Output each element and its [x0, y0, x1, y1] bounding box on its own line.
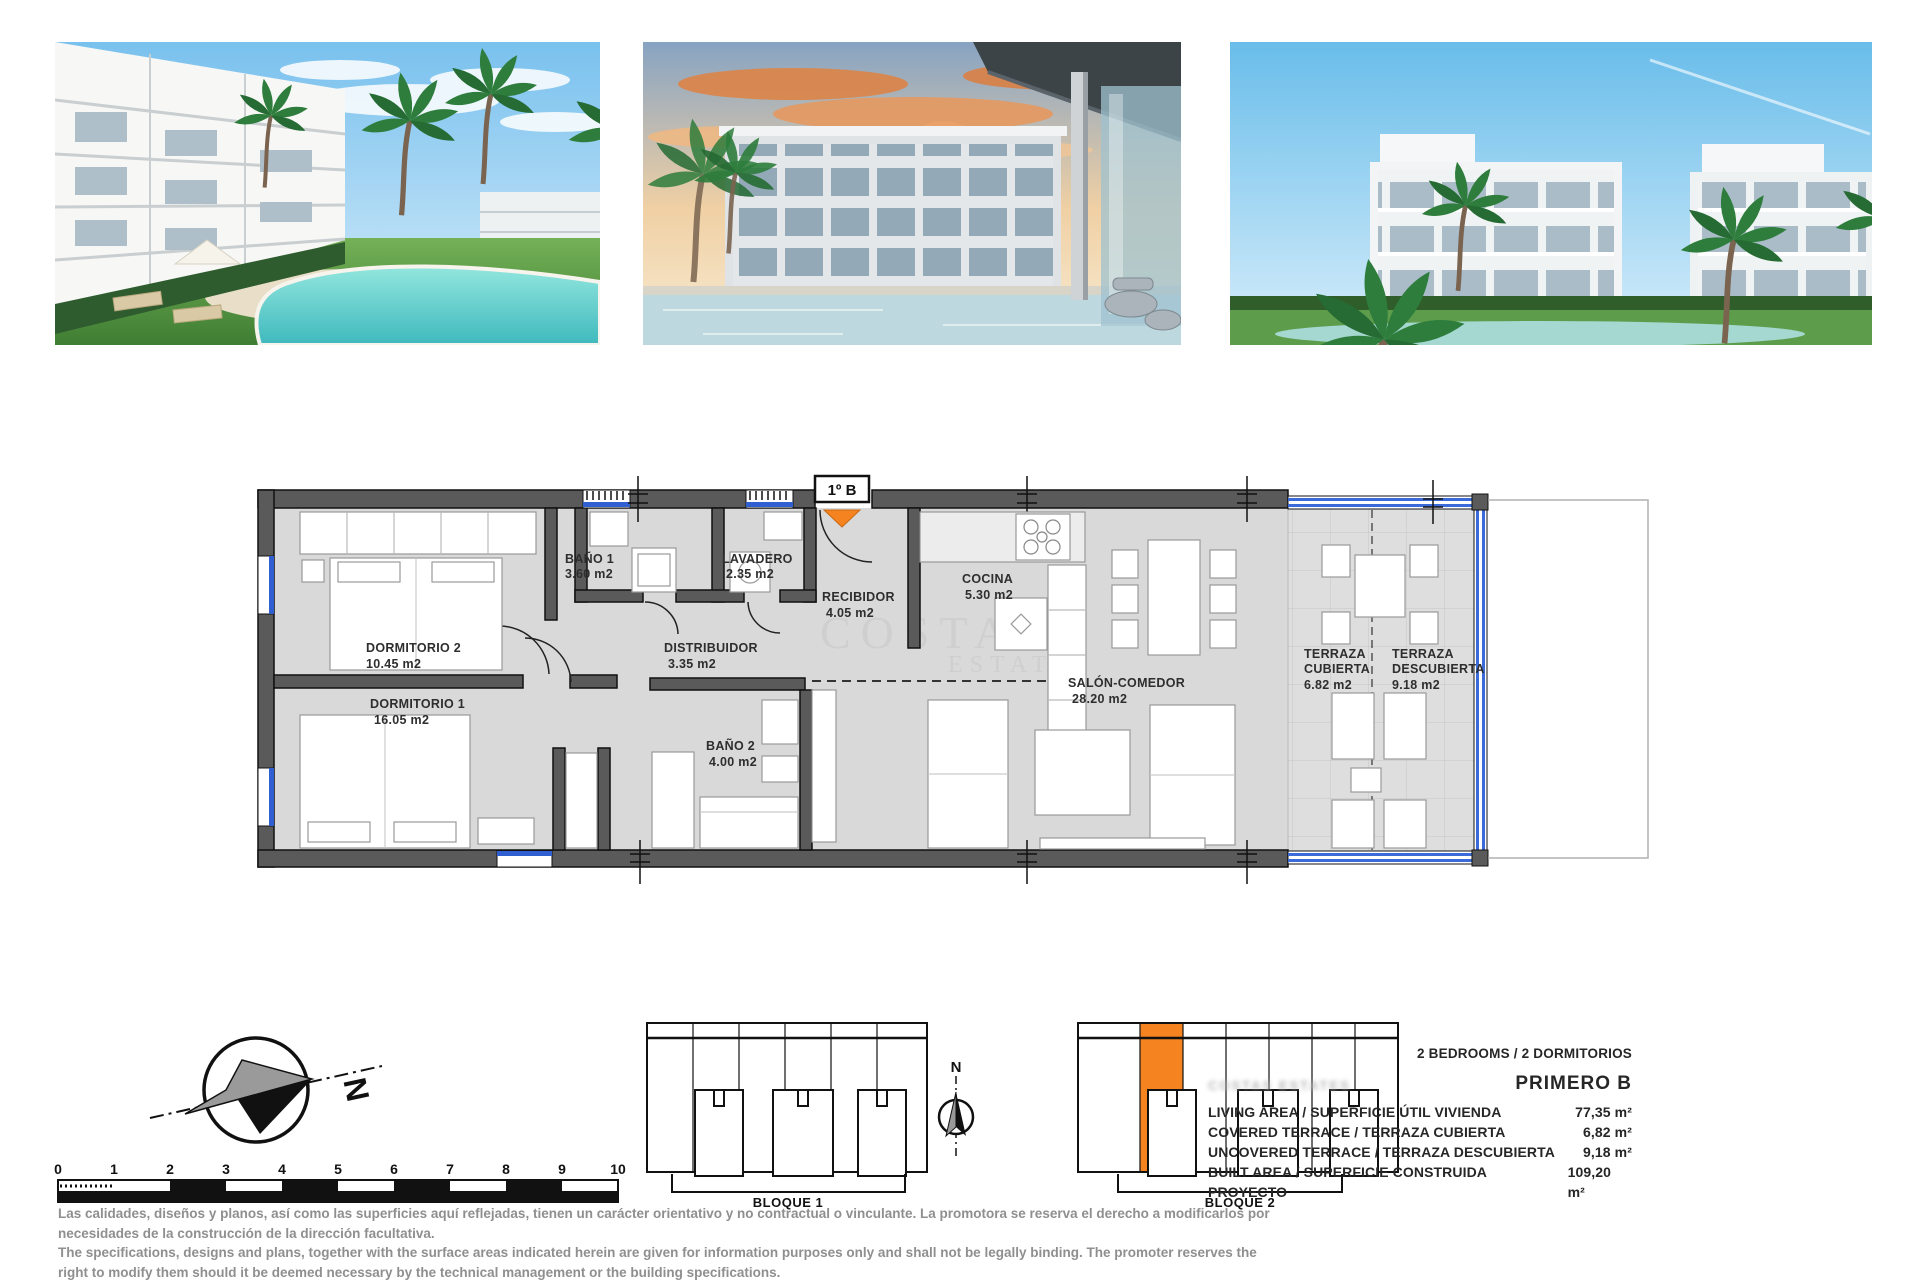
svg-text:2: 2 — [166, 1161, 174, 1177]
north-label: N — [336, 1074, 376, 1104]
room-area-bano1: 3.60 m2 — [565, 567, 613, 581]
room-area-recibidor: 4.05 m2 — [826, 606, 874, 620]
svg-text:0: 0 — [54, 1161, 62, 1177]
spec-value: 77,35 m² — [1575, 1102, 1632, 1122]
room-label-terraza-descubierta-1: TERRAZA — [1392, 647, 1454, 661]
window-top-2 — [746, 490, 793, 508]
spec-label: COVERED TERRACE / TERRAZA CUBIERTA — [1208, 1122, 1505, 1142]
window-left-1 — [258, 556, 274, 614]
disclaimer-es-line2: necesidades de la construcción de la dir… — [58, 1224, 1458, 1244]
adjacent-outline — [1488, 500, 1648, 858]
spec-label: LIVING AREA / SUPERFICIE ÚTIL VIVIENDA — [1208, 1102, 1501, 1122]
svg-text:10: 10 — [610, 1161, 626, 1177]
svg-text:3: 3 — [222, 1161, 230, 1177]
north-compass: N — [150, 1038, 382, 1142]
spec-row-uncovered-terrace: UNCOVERED TERRACE / TERRAZA DESCUBIERTA … — [1208, 1142, 1632, 1162]
room-area-salon: 28.20 m2 — [1072, 692, 1127, 706]
spec-label: UNCOVERED TERRACE / TERRAZA DESCUBIERTA — [1208, 1142, 1555, 1162]
svg-text:4: 4 — [278, 1161, 286, 1177]
svg-text:6: 6 — [390, 1161, 398, 1177]
legal-disclaimer: Las calidades, diseños y planos, así com… — [58, 1204, 1458, 1280]
window-left-2 — [258, 768, 274, 826]
spec-row-covered-terrace: COVERED TERRACE / TERRAZA CUBIERTA 6,82 … — [1208, 1122, 1632, 1142]
room-label-bano1: BAÑO 1 — [565, 551, 614, 566]
scale-bar: 0 1 2 3 4 5 6 7 8 9 10 — [54, 1161, 626, 1202]
room-area-dormitorio2: 10.45 m2 — [366, 657, 421, 671]
room-label-bano2: BAÑO 2 — [706, 738, 755, 753]
room-label-salon: SALÓN-COMEDOR — [1068, 675, 1185, 690]
room-label-cocina: COCINA — [962, 572, 1013, 586]
bloque1-diagram — [647, 1023, 927, 1192]
room-area-terraza-descubierta: 9.18 m2 — [1392, 678, 1440, 692]
room-label-terraza-cubierta-1: TERRAZA — [1304, 647, 1366, 661]
room-area-distribuidor: 3.35 m2 — [668, 657, 716, 671]
room-label-dormitorio2: DORMITORIO 2 — [366, 641, 461, 655]
bedrooms-line: 2 BEDROOMS / 2 DORMITORIOS — [1208, 1046, 1632, 1061]
room-label-dormitorio1: DORMITORIO 1 — [370, 697, 465, 711]
room-label-recibidor: RECIBIDOR — [822, 590, 895, 604]
spec-row-built-area: BUILT AREA / SUPERFICIE CONSTRUIDA PROYE… — [1208, 1162, 1632, 1202]
window-top-1 — [583, 490, 630, 508]
disclaimer-es-line1: Las calidades, diseños y planos, así com… — [58, 1204, 1458, 1224]
specs-table: 2 BEDROOMS / 2 DORMITORIOS PRIMERO B LIV… — [1208, 1046, 1632, 1202]
room-label-lavadero: LAVADERO — [722, 552, 793, 566]
room-label-terraza-cubierta-2: CUBIERTA — [1304, 662, 1370, 676]
disclaimer-en-line2: right to modify them should it be deemed… — [58, 1263, 1458, 1280]
room-area-dormitorio1: 16.05 m2 — [374, 713, 429, 727]
svg-text:8: 8 — [502, 1161, 510, 1177]
svg-text:7: 7 — [446, 1161, 454, 1177]
window-bottom-1 — [497, 851, 552, 867]
room-area-bano2: 4.00 m2 — [709, 755, 757, 769]
svg-text:9: 9 — [558, 1161, 566, 1177]
room-label-distribuidor: DISTRIBUIDOR — [664, 641, 758, 655]
north-compass-small: N — [939, 1059, 973, 1160]
spec-value: 109,20 m² — [1568, 1162, 1632, 1202]
spec-value: 6,82 m² — [1583, 1122, 1632, 1142]
spec-row-living-area: LIVING AREA / SUPERFICIE ÚTIL VIVIENDA 7… — [1208, 1102, 1632, 1122]
room-area-lavadero: 2.35 m2 — [726, 567, 774, 581]
disclaimer-en-line1: The specifications, designs and plans, t… — [58, 1243, 1458, 1263]
svg-text:1: 1 — [110, 1161, 118, 1177]
svg-text:5: 5 — [334, 1161, 342, 1177]
unit-tag: 1º B — [828, 482, 857, 499]
spec-label: BUILT AREA / SUPERFICIE CONSTRUIDA PROYE… — [1208, 1162, 1568, 1202]
north-label-small: N — [951, 1059, 962, 1076]
brochure-page: { "floorplan": { "unit_label": "1º B", "… — [0, 0, 1920, 1280]
floorplan-and-site-layer: COSTAS ESTATES — [0, 0, 1920, 1280]
spec-value: 9,18 m² — [1583, 1142, 1632, 1162]
room-area-terraza-cubierta: 6.82 m2 — [1304, 678, 1352, 692]
room-area-cocina: 5.30 m2 — [965, 588, 1013, 602]
unit-name: PRIMERO B — [1208, 1073, 1632, 1095]
room-label-terraza-descubierta-2: DESCUBIERTA — [1392, 662, 1485, 676]
